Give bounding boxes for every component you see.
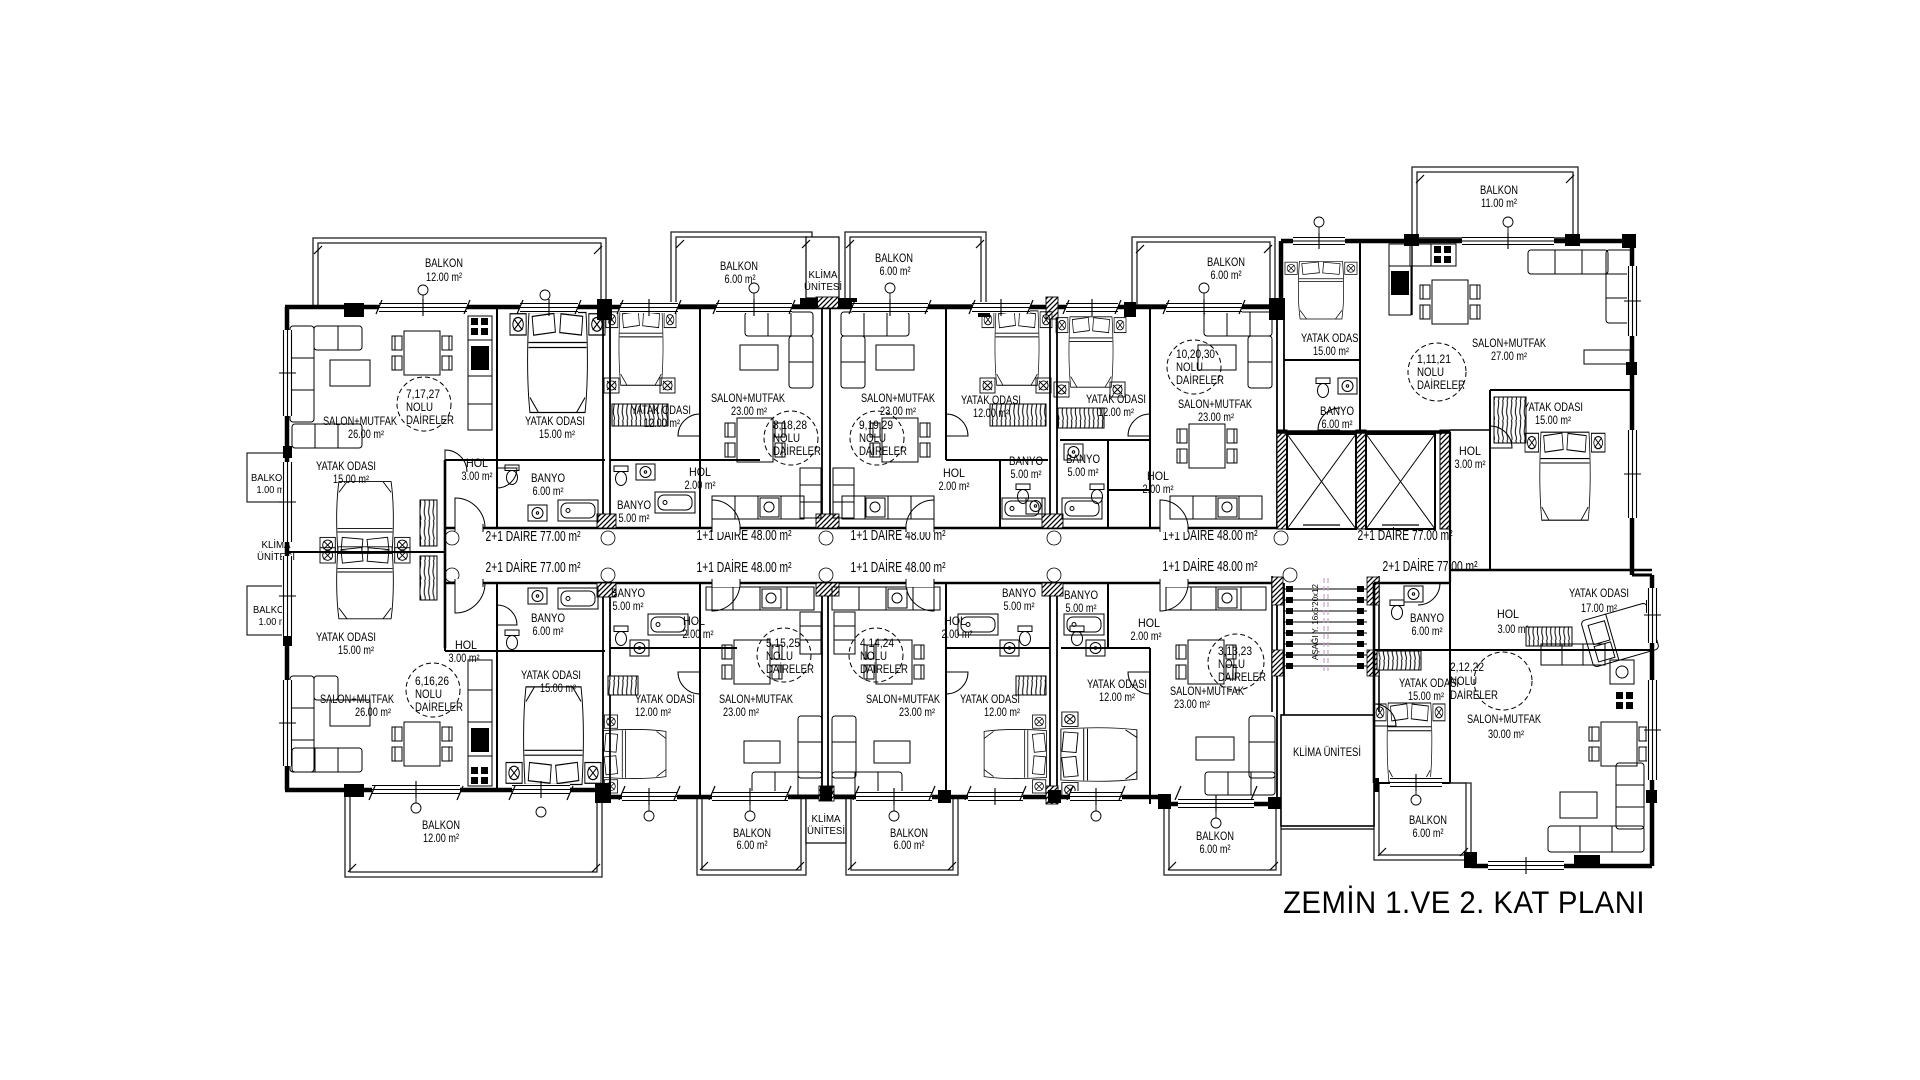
svg-text:DAİRELER: DAİRELER — [1450, 689, 1498, 702]
svg-text:3.00 m²: 3.00 m² — [462, 471, 493, 483]
svg-text:SALON+MUTFAK: SALON+MUTFAK — [866, 692, 940, 706]
svg-text:BANYO: BANYO — [1320, 404, 1354, 418]
svg-text:6.00 m²: 6.00 m² — [1200, 842, 1231, 856]
svg-text:HOL: HOL — [944, 614, 966, 628]
svg-text:6,16,26: 6,16,26 — [415, 676, 449, 688]
svg-text:DAİRELER: DAİRELER — [773, 445, 821, 458]
svg-text:6.00 m²: 6.00 m² — [1211, 268, 1242, 282]
svg-text:BANYO: BANYO — [1410, 611, 1444, 625]
svg-text:BANYO: BANYO — [1009, 454, 1043, 468]
svg-text:YATAK ODASI: YATAK ODASI — [1087, 677, 1147, 691]
svg-text:BANYO: BANYO — [1002, 586, 1036, 600]
svg-text:5.00 m²: 5.00 m² — [1004, 601, 1035, 613]
svg-text:12.00 m²: 12.00 m² — [644, 418, 680, 430]
svg-text:BALKON: BALKON — [1409, 813, 1447, 827]
svg-text:12.00 m²: 12.00 m² — [1098, 407, 1134, 419]
svg-text:BALKON: BALKON — [422, 818, 460, 832]
svg-text:YATAK ODASI: YATAK ODASI — [1399, 676, 1459, 690]
svg-text:5.00 m²: 5.00 m² — [1011, 469, 1042, 481]
svg-text:ÜNİTESİ: ÜNİTESİ — [804, 280, 842, 293]
svg-text:SALON+MUTFAK: SALON+MUTFAK — [1467, 712, 1541, 726]
svg-text:DAİRELER: DAİRELER — [1176, 374, 1224, 387]
svg-text:15.00 m²: 15.00 m² — [540, 683, 576, 695]
svg-text:BALKON: BALKON — [1207, 255, 1245, 269]
svg-text:BANYO: BANYO — [1064, 588, 1098, 602]
svg-text:15.00 m²: 15.00 m² — [539, 429, 575, 441]
svg-text:23.00 m²: 23.00 m² — [1174, 699, 1210, 711]
svg-text:YATAK ODASI: YATAK ODASI — [635, 692, 695, 706]
svg-text:SALON+MUTFAK: SALON+MUTFAK — [323, 414, 397, 428]
svg-text:12.00 m²: 12.00 m² — [984, 707, 1020, 719]
svg-text:BALKON: BALKON — [1480, 183, 1518, 197]
svg-text:10,20,30: 10,20,30 — [1176, 349, 1215, 361]
svg-text:BALKON: BALKON — [425, 256, 463, 270]
svg-text:DAİRELER: DAİRELER — [859, 445, 907, 458]
svg-text:6.00 m²: 6.00 m² — [737, 838, 768, 852]
svg-text:3.00 m²: 3.00 m² — [449, 653, 480, 665]
svg-text:23.00 m²: 23.00 m² — [1198, 412, 1234, 424]
svg-text:SALON+MUTFAK: SALON+MUTFAK — [1178, 397, 1252, 411]
svg-text:YATAK ODASI: YATAK ODASI — [631, 403, 691, 417]
svg-text:BALKON: BALKON — [875, 251, 913, 265]
svg-text:23.00 m²: 23.00 m² — [723, 707, 759, 719]
svg-text:YATAK ODASI: YATAK ODASI — [525, 414, 585, 428]
svg-text:NOLU: NOLU — [415, 689, 442, 701]
svg-text:NOLU: NOLU — [1417, 367, 1444, 379]
svg-text:DAİRELER: DAİRELER — [415, 701, 463, 714]
svg-text:2,12,22: 2,12,22 — [1450, 662, 1484, 674]
svg-text:12.00 m²: 12.00 m² — [1099, 692, 1135, 704]
svg-text:YATAK ODASI: YATAK ODASI — [316, 459, 376, 473]
svg-text:9,19,29: 9,19,29 — [859, 420, 893, 432]
svg-text:YATAK ODASI: YATAK ODASI — [1301, 331, 1361, 345]
svg-text:SALON+MUTFAK: SALON+MUTFAK — [320, 692, 394, 706]
svg-text:HOL: HOL — [455, 638, 477, 652]
svg-text:7,17,27: 7,17,27 — [406, 389, 440, 401]
svg-text:1+1 DAİRE 48.00 m²: 1+1 DAİRE 48.00 m² — [1163, 557, 1258, 575]
svg-text:17.00 m²: 17.00 m² — [1581, 603, 1617, 615]
svg-text:HOL: HOL — [1138, 616, 1160, 630]
svg-text:2.00 m²: 2.00 m² — [1143, 484, 1174, 496]
svg-text:5,15,25: 5,15,25 — [766, 638, 800, 650]
svg-text:6.00 m²: 6.00 m² — [894, 838, 925, 852]
svg-text:BANYO: BANYO — [611, 586, 645, 600]
svg-text:BALKON: BALKON — [720, 259, 758, 273]
svg-text:2+1 DAİRE 77.00 m²: 2+1 DAİRE 77.00 m² — [486, 527, 581, 545]
svg-text:YATAK ODASI: YATAK ODASI — [521, 668, 581, 682]
svg-text:2+1 DAİRE 77.00 m²: 2+1 DAİRE 77.00 m² — [486, 558, 581, 576]
svg-text:11.00 m²: 11.00 m² — [1481, 196, 1517, 210]
svg-text:HOL: HOL — [1497, 607, 1519, 621]
svg-text:6.00 m²: 6.00 m² — [533, 626, 564, 638]
svg-text:2.00 m²: 2.00 m² — [939, 481, 970, 493]
svg-text:5.00 m²: 5.00 m² — [1066, 603, 1097, 615]
svg-text:6.00 m²: 6.00 m² — [880, 264, 911, 278]
svg-text:DAİRELER: DAİRELER — [1417, 379, 1465, 392]
svg-text:NOLU: NOLU — [1176, 362, 1203, 374]
svg-text:HOL: HOL — [1459, 444, 1481, 458]
svg-text:26.00 m²: 26.00 m² — [355, 707, 391, 719]
svg-text:1+1 DAİRE 48.00 m²: 1+1 DAİRE 48.00 m² — [697, 526, 792, 544]
svg-text:5.00 m²: 5.00 m² — [1068, 467, 1099, 479]
svg-text:DAİRELER: DAİRELER — [406, 414, 454, 427]
svg-text:23.00 m²: 23.00 m² — [731, 406, 767, 418]
svg-text:15.00 m²: 15.00 m² — [1313, 346, 1349, 358]
svg-text:YATAK ODASI: YATAK ODASI — [1569, 586, 1629, 600]
svg-text:BALKON: BALKON — [1196, 829, 1234, 843]
svg-text:YATAK ODASI: YATAK ODASI — [316, 630, 376, 644]
svg-text:KLİMA: KLİMA — [809, 268, 838, 281]
svg-text:5.00 m²: 5.00 m² — [613, 601, 644, 613]
svg-text:26.00 m²: 26.00 m² — [348, 429, 384, 441]
svg-text:ÜNİTESİ: ÜNİTESİ — [807, 824, 845, 837]
svg-text:HOL: HOL — [1147, 469, 1169, 483]
svg-text:SALON+MUTFAK: SALON+MUTFAK — [861, 391, 935, 405]
svg-text:12.00 m²: 12.00 m² — [635, 707, 671, 719]
svg-text:5.00 m²: 5.00 m² — [619, 513, 650, 525]
svg-text:3,13,23: 3,13,23 — [1218, 646, 1252, 658]
svg-text:SALON+MUTFAK: SALON+MUTFAK — [719, 692, 793, 706]
svg-text:HOL: HOL — [683, 614, 705, 628]
svg-text:HOL: HOL — [689, 465, 711, 479]
svg-text:ZEMİN 1.VE 2. KAT PLANI: ZEMİN 1.VE 2. KAT PLANI — [1283, 884, 1645, 920]
svg-text:12.00 m²: 12.00 m² — [423, 831, 459, 845]
svg-text:KLİMA ÜNİTESİ: KLİMA ÜNİTESİ — [1293, 745, 1361, 759]
svg-text:6.00 m²: 6.00 m² — [1412, 626, 1443, 638]
svg-text:YATAK ODASI: YATAK ODASI — [1523, 400, 1583, 414]
svg-text:YATAK ODASI: YATAK ODASI — [960, 692, 1020, 706]
svg-text:15.00 m²: 15.00 m² — [1535, 415, 1571, 427]
svg-text:30.00 m²: 30.00 m² — [1488, 729, 1524, 741]
svg-text:2.00 m²: 2.00 m² — [1131, 631, 1162, 643]
svg-text:HOL: HOL — [466, 456, 488, 470]
svg-text:27.00 m²: 27.00 m² — [1491, 351, 1527, 363]
svg-text:2+1 DAİRE 77.00 m²: 2+1 DAİRE 77.00 m² — [1383, 557, 1478, 575]
svg-text:BANYO: BANYO — [531, 611, 565, 625]
svg-text:15.00 m²: 15.00 m² — [338, 645, 374, 657]
svg-text:SALON+MUTFAK: SALON+MUTFAK — [1472, 336, 1546, 350]
svg-text:AŞAĞI Y. 16x5'20x12: AŞAĞI Y. 16x5'20x12 — [1311, 583, 1320, 660]
svg-text:6.00 m²: 6.00 m² — [1322, 419, 1353, 431]
svg-text:1+1 DAİRE 48.00 m²: 1+1 DAİRE 48.00 m² — [851, 558, 946, 576]
svg-text:2.00 m²: 2.00 m² — [685, 480, 716, 492]
svg-text:1,11,21: 1,11,21 — [1417, 354, 1451, 366]
svg-text:BANYO: BANYO — [531, 471, 565, 485]
svg-text:KLİMA: KLİMA — [812, 812, 841, 825]
svg-text:8,18,28: 8,18,28 — [773, 420, 807, 432]
svg-text:12.00 m²: 12.00 m² — [426, 270, 462, 284]
svg-text:SALON+MUTFAK: SALON+MUTFAK — [711, 391, 785, 405]
svg-text:1+1 DAİRE 48.00 m²: 1+1 DAİRE 48.00 m² — [697, 558, 792, 576]
svg-text:3.00 m²: 3.00 m² — [1455, 459, 1486, 471]
svg-text:23.00 m²: 23.00 m² — [880, 406, 916, 418]
svg-text:DAİRELER: DAİRELER — [1218, 671, 1266, 684]
svg-text:23.00 m²: 23.00 m² — [899, 707, 935, 719]
svg-text:YATAK ODASI: YATAK ODASI — [961, 393, 1021, 407]
svg-text:3.00 m²: 3.00 m² — [1498, 624, 1529, 636]
svg-text:12.00 m²: 12.00 m² — [973, 408, 1009, 420]
svg-text:6.00 m²: 6.00 m² — [533, 486, 564, 498]
svg-text:BANYO: BANYO — [617, 498, 651, 512]
svg-text:15.00 m²: 15.00 m² — [1408, 691, 1444, 703]
svg-text:HOL: HOL — [943, 466, 965, 480]
svg-text:6.00 m²: 6.00 m² — [1413, 826, 1444, 840]
svg-text:SALON+MUTFAK: SALON+MUTFAK — [1170, 684, 1244, 698]
svg-text:NOLU: NOLU — [406, 402, 433, 414]
